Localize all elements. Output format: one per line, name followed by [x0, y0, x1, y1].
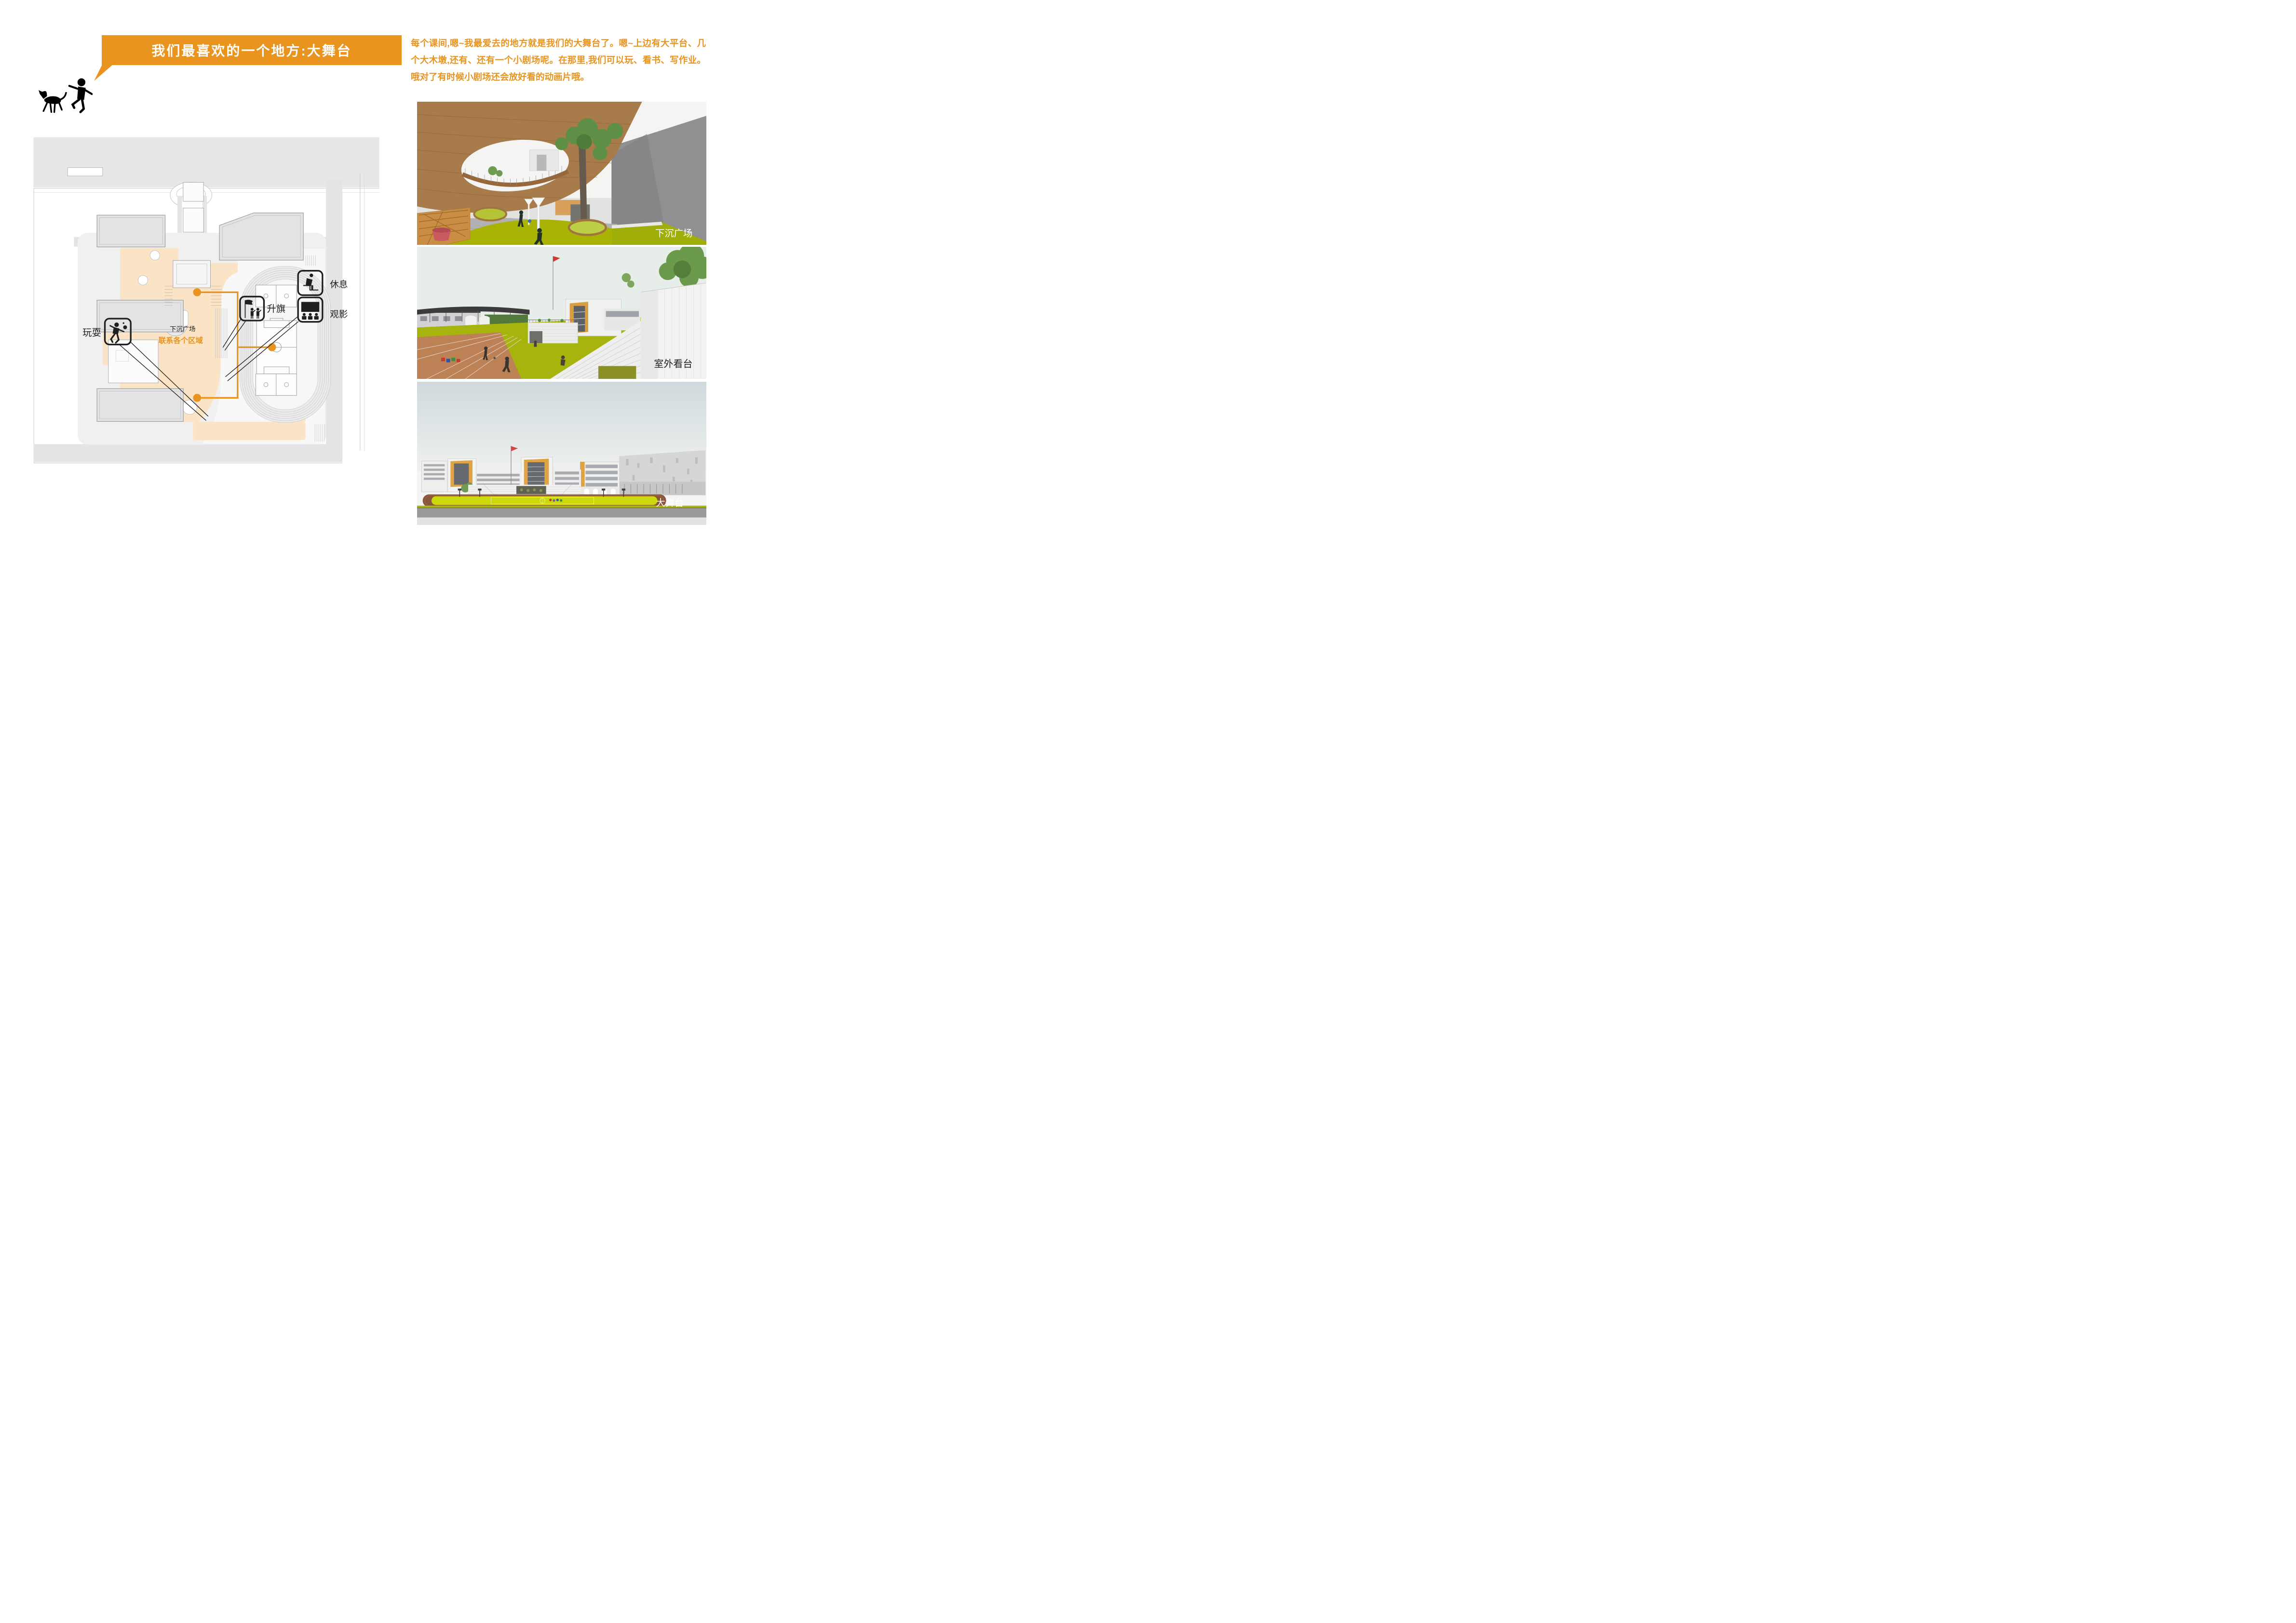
- dog-icon: [39, 90, 66, 112]
- label-movie: 观影: [330, 309, 348, 319]
- movie-screen-icon: [301, 302, 319, 320]
- gym-building: [619, 450, 705, 495]
- rendering-big-stage: 大舞台: [417, 382, 706, 525]
- red-bowl: [432, 228, 451, 241]
- label-rest: 休息: [330, 279, 348, 289]
- basketball-courts-bottom: [256, 374, 297, 396]
- label-sunken-plaza: 下沉广场: [170, 325, 195, 333]
- basketball-courts-top: [256, 285, 297, 307]
- rendering-sunken-plaza: 下沉广场: [417, 102, 706, 245]
- dog-and-kid-icon: [39, 75, 93, 116]
- page-title: 我们最喜欢的一个地方:大舞台: [151, 40, 351, 60]
- caption-sunken-plaza: 下沉广场: [655, 228, 692, 239]
- green-planter-box: [598, 366, 636, 379]
- caption-outdoor-stands: 室外看台: [654, 358, 692, 369]
- site-plan-diagram: 玩耍 升旗 休息 观影 下沉广场 联系各个区域: [29, 127, 379, 464]
- running-kid-icon: [69, 79, 92, 112]
- ball: [528, 219, 531, 223]
- presentation-board: 我们最喜欢的一个地方:大舞台 每个课间,嗯~我最爱去的地方就是我们的大舞台了。嗯…: [0, 0, 766, 541]
- rendering-outdoor-stands: 室外看台: [417, 247, 706, 379]
- sidewalk: [417, 518, 706, 525]
- banner-tail: [94, 65, 113, 81]
- label-flag: 升旗: [267, 304, 286, 314]
- title-banner: 我们最喜欢的一个地方:大舞台: [102, 35, 402, 65]
- road: [417, 508, 706, 518]
- label-play: 玩耍: [82, 328, 101, 338]
- caption-big-stage: 大舞台: [656, 498, 684, 509]
- intro-paragraph: 每个课间,嗯~我最爱去的地方就是我们的大舞台了。嗯~上边有大平台、几个大木墩,还…: [411, 35, 706, 85]
- label-connect-areas: 联系各个区域: [159, 336, 203, 345]
